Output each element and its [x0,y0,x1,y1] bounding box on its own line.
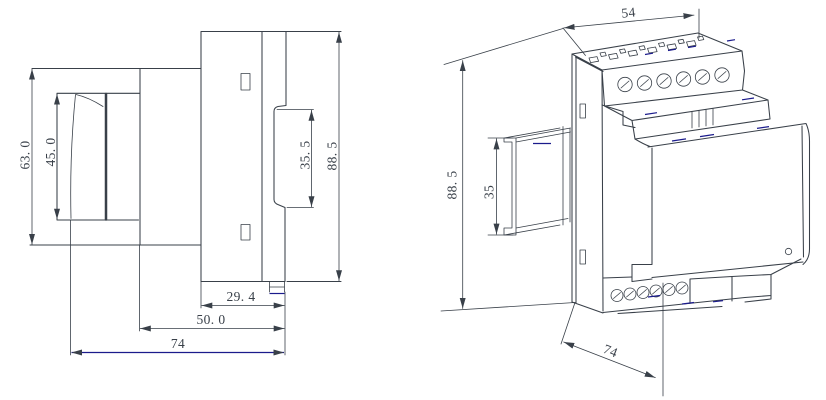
dim-50-0: 50. 0 [140,245,285,331]
cover-side-hole [785,248,791,254]
side-tab-top [241,74,250,91]
dim-label-74-side: 74 [171,336,185,351]
dim-45-0: 45. 0 [43,94,58,219]
dim-label-35-5: 35. 5 [298,141,313,170]
terminal-screw-face [602,51,745,106]
back-panel-vent-bottom [580,250,586,264]
back-panel-vent-top [580,104,586,118]
technical-drawing-canvas: 63. 0 45. 0 35. 5 88. 5 29. 4 50. 0 [0,0,826,400]
cover-hidden-dashes [672,127,769,141]
top-hidden-dashes [645,40,735,55]
side-view-outline [30,32,341,282]
dim-88-5-iso: 88. 5 [441,29,575,312]
terminal-screws-top [618,68,729,92]
front-cover [632,124,810,282]
module-back-panel [572,54,603,313]
dim-label-50-0: 50. 0 [197,312,226,327]
din-rail-profile [504,127,571,236]
mid-tier [602,90,770,139]
dim-88-5-side: 88. 5 [325,32,340,281]
dim-63-0: 63. 0 [18,69,33,245]
side-view: 63. 0 45. 0 35. 5 88. 5 29. 4 50. 0 [18,32,342,356]
dim-label-54: 54 [621,4,637,20]
dim-74-side: 74 [71,220,285,355]
dim-label-63-0: 63. 0 [18,141,33,170]
oblique-view: 54 88. 5 35 74 [441,4,810,396]
dim-label-29-4: 29. 4 [227,289,256,304]
clip-spring-curve [71,95,103,219]
dim-35: 35 [482,138,514,235]
din-rail [504,127,571,236]
dim-label-88-5-iso: 88. 5 [445,171,460,200]
clip-foot [270,282,285,293]
terminal-screws-bottom [611,282,688,302]
bottom-terminal-block [603,259,801,314]
terminal-top-face [572,33,742,70]
din-module-dimension-drawing: 63. 0 45. 0 35. 5 88. 5 29. 4 50. 0 [0,0,826,400]
dim-label-88-5-side: 88. 5 [325,142,340,171]
bottom-hidden-dashes [648,296,723,305]
dim-label-45-0: 45. 0 [43,138,58,167]
dim-35-5: 35. 5 [277,110,314,208]
mid-tier-hidden-dashes [645,98,754,115]
side-tab-bottom [241,225,250,241]
dim-label-35: 35 [482,185,497,199]
dim-54: 54 [563,4,699,55]
